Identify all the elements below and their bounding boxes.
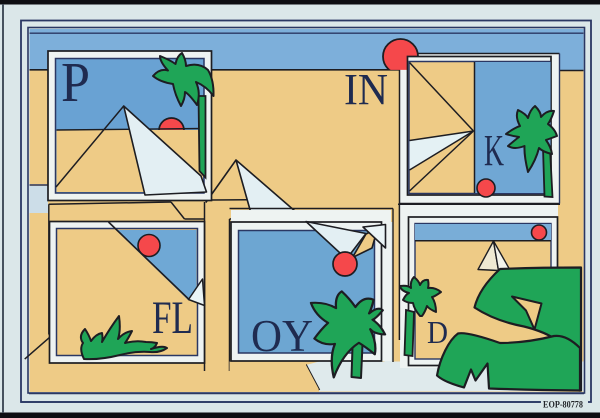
svg-text:IN: IN	[344, 65, 388, 114]
svg-text:P: P	[61, 52, 90, 114]
svg-text:D: D	[427, 314, 448, 350]
svg-text:OY: OY	[251, 311, 313, 361]
svg-text:K: K	[484, 126, 504, 175]
svg-text:EOP-80778: EOP-80778	[543, 401, 583, 411]
svg-text:FL: FL	[152, 292, 193, 344]
